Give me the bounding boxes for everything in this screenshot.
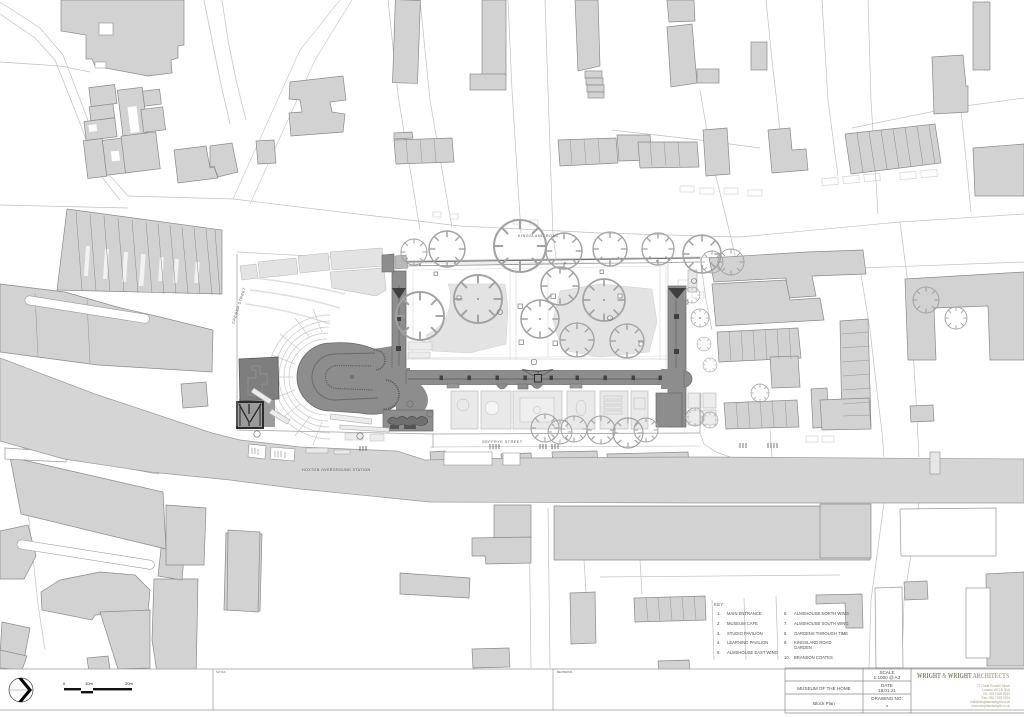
svg-text:6.: 6. (784, 611, 788, 616)
svg-text:4.: 4. (717, 640, 721, 645)
svg-text:MUSEUM CAFE: MUSEUM CAFE (727, 621, 758, 626)
svg-text:STUDIO PAVILION: STUDIO PAVILION (727, 631, 763, 636)
svg-text:2.: 2. (717, 621, 721, 626)
svg-text:www.wrightandwright.co.uk: www.wrightandwright.co.uk (972, 704, 1011, 708)
svg-text:ALMSHOUSE SOUTH WING: ALMSHOUSE SOUTH WING (794, 621, 849, 626)
svg-text:MAIN ENTRANCE: MAIN ENTRANCE (727, 611, 762, 616)
svg-text:BRANSON COATES: BRANSON COATES (794, 655, 833, 660)
svg-text:KINGSLAND ROAD: KINGSLAND ROAD (518, 234, 559, 238)
svg-text:1.: 1. (717, 611, 721, 616)
svg-text:KEY:: KEY: (714, 602, 725, 607)
svg-text:LEARNING PAVILION: LEARNING PAVILION (727, 640, 768, 645)
svg-text:5.: 5. (717, 650, 721, 655)
svg-text:3.: 3. (717, 631, 721, 636)
svg-text:20m: 20m (125, 681, 133, 686)
svg-text:NOTES: NOTES (216, 670, 226, 674)
svg-text:GARDEN: GARDEN (794, 645, 812, 650)
svg-text:10m: 10m (85, 681, 93, 686)
svg-text:HOXTON OVERGROUND STATION: HOXTON OVERGROUND STATION (302, 468, 371, 472)
svg-text:ALMSHOUSE NORTH WING: ALMSHOUSE NORTH WING (794, 611, 849, 616)
svg-text:DRAWING NO:: DRAWING NO: (871, 696, 902, 701)
svg-text:9.: 9. (784, 640, 788, 645)
svg-text:Block Plan: Block Plan (813, 701, 835, 706)
svg-text:8.: 8. (784, 631, 788, 636)
svg-text:MUSEUM OF THE HOME: MUSEUM OF THE HOME (797, 686, 851, 691)
svg-text:1:1000 @ A3: 1:1000 @ A3 (874, 675, 901, 680)
svg-text:18.01.21: 18.01.21 (878, 688, 896, 693)
svg-text:GARDENS THROUGH TIME: GARDENS THROUGH TIME (794, 631, 848, 636)
svg-text:WRIGHT & WRIGHT ARCHITECTS: WRIGHT & WRIGHT ARCHITECTS (917, 671, 1009, 680)
svg-text:REVISIONS: REVISIONS (557, 670, 572, 674)
svg-text:10.: 10. (784, 655, 790, 660)
svg-text:ALMSHOUSE EAST WING: ALMSHOUSE EAST WING (727, 650, 778, 655)
svg-text:7.: 7. (784, 621, 788, 626)
svg-text:GEFFRYE STREET: GEFFRYE STREET (482, 440, 523, 444)
